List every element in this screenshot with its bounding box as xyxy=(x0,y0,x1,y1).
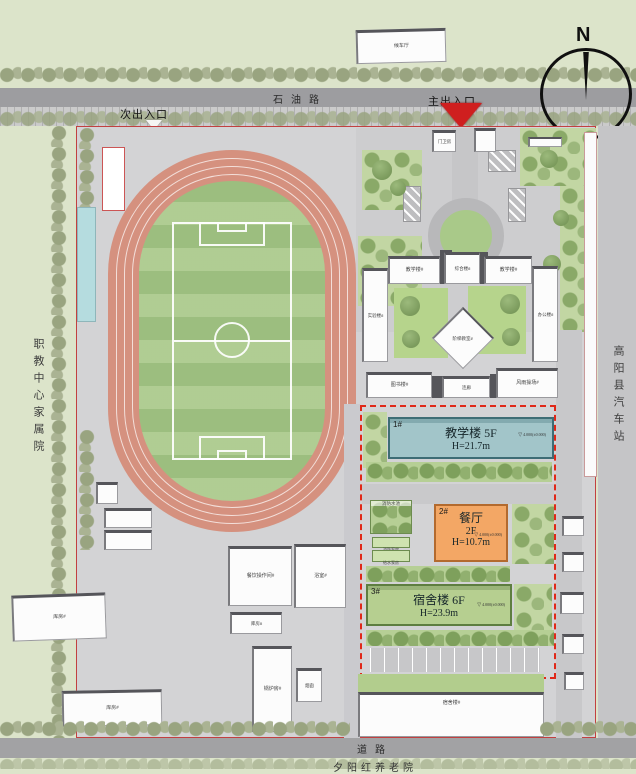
tree-row-south-e xyxy=(540,720,636,740)
existing-lab: 实验楼# xyxy=(362,268,388,362)
sw-small-building-2 xyxy=(104,508,152,528)
east-neighbour-label: 高阳县汽车站 xyxy=(610,345,626,447)
east-small-building-1 xyxy=(562,516,584,536)
parking-hatch-3 xyxy=(488,150,516,172)
kitchen-label: 餐饮操作间# xyxy=(247,574,275,580)
gate-house-east xyxy=(474,128,496,152)
east-small-building-3 xyxy=(560,592,584,614)
south-dorm-building: 宿舍楼# xyxy=(358,692,544,737)
north-road-label: 石油路 xyxy=(220,91,380,106)
east-small-building-2 xyxy=(562,552,584,572)
new-building-2-height: H=10.7m xyxy=(436,537,506,548)
courtyard-tree-3 xyxy=(500,294,520,314)
water-pump-label: 给水泵房 xyxy=(383,560,399,565)
pitch-center-circle xyxy=(214,322,250,358)
bus-hall-label: 候车厅 xyxy=(394,44,409,50)
football-pitch xyxy=(172,222,292,460)
zone-green-east-1 xyxy=(512,504,554,564)
tree-row-below-b1 xyxy=(366,462,552,482)
existing-library-label: 图书楼# xyxy=(391,383,409,389)
tree-blob-1 xyxy=(372,160,392,180)
water-pump-room: 给水泵房 xyxy=(372,550,410,562)
east-strip-building xyxy=(584,132,597,477)
tree-col-inner-nw xyxy=(78,128,98,212)
bath-building: 浴室# xyxy=(294,544,346,608)
fire-pool: 消防水池 xyxy=(370,500,412,534)
existing-teaching-east-label: 教学楼# xyxy=(500,268,518,274)
existing-comprehensive: 综合楼# xyxy=(444,252,480,284)
west-strip-building xyxy=(102,147,125,211)
existing-comprehensive-label: 综合楼# xyxy=(455,266,471,271)
existing-teaching-east: 教学楼# xyxy=(484,256,532,284)
store-building-1: 库房# xyxy=(11,592,107,641)
zone-green-west xyxy=(363,412,387,468)
east-small-building-4 xyxy=(562,634,584,654)
existing-office: 办公楼# xyxy=(532,266,558,362)
south-neighbour-label: 夕阳红养老院 xyxy=(280,759,470,774)
tree-blob-3 xyxy=(540,150,558,168)
boiler-label: 锅炉房# xyxy=(264,687,282,693)
gate-house-west: 门卫房 xyxy=(432,130,456,152)
bus-shelter-strip xyxy=(528,137,562,147)
bath-label: 浴室# xyxy=(314,574,327,580)
infield xyxy=(139,181,325,501)
fire-pool-label: 消防水池 xyxy=(371,501,411,506)
existing-office-label: 办公楼# xyxy=(538,312,554,317)
goal-box-top xyxy=(217,222,247,232)
new-building-3: 3# 宿舍楼 6F H=23.9m 4.000(±0.000) xyxy=(366,584,512,626)
tree-col-west xyxy=(50,126,78,738)
new-building-2-tag: 2# xyxy=(439,507,448,516)
chimney-building: 烟囱 xyxy=(296,668,322,702)
tree-col-inner-sw xyxy=(78,430,98,550)
parking-hatch-2 xyxy=(508,188,526,222)
sw-small-building-3 xyxy=(104,530,152,550)
tree-blob-2 xyxy=(390,180,406,196)
kitchen-building: 餐饮操作间# xyxy=(228,546,292,606)
chimney-label: 烟囱 xyxy=(305,683,314,688)
running-track xyxy=(108,150,356,532)
existing-teaching-west-label: 教学楼# xyxy=(406,268,424,274)
new-building-3-height: H=23.9m xyxy=(368,608,510,619)
tree-blob-4 xyxy=(553,210,569,226)
existing-teaching-west: 教学楼# xyxy=(388,256,440,284)
tree-row-south-w xyxy=(0,720,350,740)
cluster-connector-3 xyxy=(432,376,442,398)
store-1-label: 库房# xyxy=(53,615,66,621)
existing-lecture-hall-label: 阶梯教室# xyxy=(453,336,473,341)
dorm-lawn xyxy=(358,674,544,692)
new-building-2: 2# 餐厅 2F H=10.7m 4.000(±0.000) xyxy=(434,504,508,562)
new-building-1-tag: 1# xyxy=(393,420,402,429)
new-building-3-elevation: 4.000(±0.000) xyxy=(477,602,505,608)
goal-box-bottom xyxy=(217,450,247,460)
new-building-1-elevation: 4.000(±0.000) xyxy=(518,432,546,438)
new-building-2-elevation: 4.000(±0.000) xyxy=(474,532,502,538)
fire-pump-room: 消防泵房 xyxy=(372,537,410,548)
bus-hall-building: 候车厅 xyxy=(356,28,447,64)
existing-corridor: 连廊 xyxy=(442,376,490,398)
courtyard-tree-2 xyxy=(402,330,420,348)
existing-lab-label: 实验楼# xyxy=(368,313,384,318)
sw-small-building-1 xyxy=(96,482,118,504)
store-2-label: 库房# xyxy=(106,706,119,712)
new-building-1: 1# 教学楼 5F H=21.7m 4.000(±0.000) xyxy=(388,417,554,459)
existing-library: 图书楼# xyxy=(366,372,432,398)
new-building-3-tag: 3# xyxy=(371,587,380,596)
existing-gym: 风雨操场# xyxy=(496,368,558,398)
zone-parking-row xyxy=(370,648,540,672)
parking-hatch-1 xyxy=(403,186,421,222)
existing-gym-label: 风雨操场# xyxy=(516,381,539,387)
west-neighbour-label: 职教中心家属院 xyxy=(30,338,46,457)
store-building-c: 库房# xyxy=(230,612,282,634)
east-small-building-5 xyxy=(564,672,584,690)
tree-row-below-b3 xyxy=(366,630,554,646)
courtyard-tree-1 xyxy=(400,296,420,316)
zone-green-east-2 xyxy=(514,584,552,632)
compass-n-label: N xyxy=(576,24,590,47)
gate-house-label: 门卫房 xyxy=(438,139,452,144)
south-road xyxy=(0,738,636,758)
courtyard-tree-4 xyxy=(502,328,520,346)
existing-corridor-label: 连廊 xyxy=(462,385,471,390)
stand-strip xyxy=(77,207,96,322)
site-plan: 石油路 候车厅 N 次出入口 主出入口 职教中心家属院 高阳县汽车站 xyxy=(0,0,636,774)
tree-row-mid xyxy=(366,566,510,582)
store-c-label: 库房# xyxy=(251,621,262,626)
new-building-1-height: H=21.7m xyxy=(390,441,552,452)
south-dorm-label: 宿舍楼# xyxy=(443,701,461,707)
south-road-label: 道路 xyxy=(325,741,425,756)
main-entrance-arrow-icon xyxy=(440,103,482,128)
